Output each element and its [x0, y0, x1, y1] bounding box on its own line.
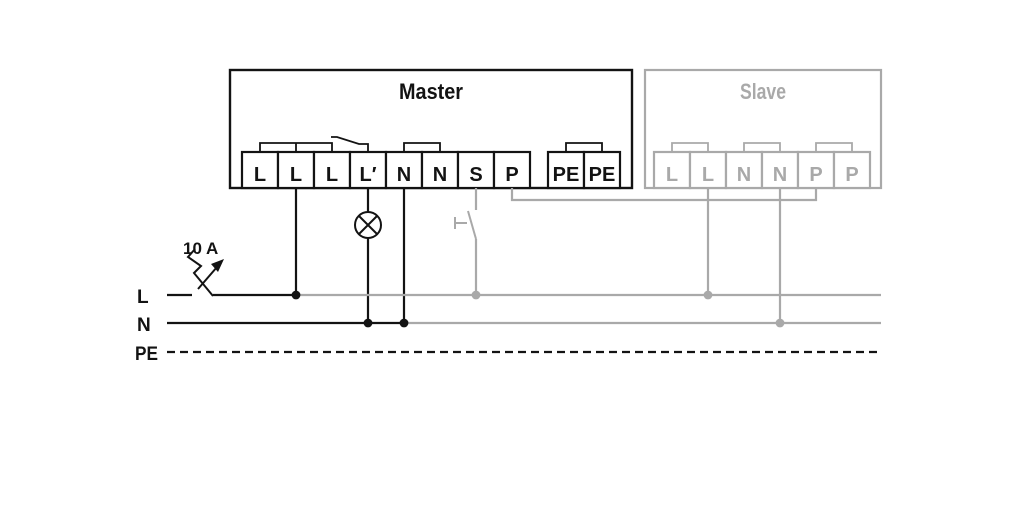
- master-l-bridge: [260, 143, 332, 152]
- push-button-icon: [455, 211, 476, 239]
- supply-bus: L N PE: [135, 287, 881, 365]
- relay-contact-icon: [331, 137, 368, 152]
- circuit-breaker: 10 A: [183, 239, 224, 296]
- junction-dot: [400, 319, 409, 328]
- lamp-icon: [355, 212, 381, 238]
- pe-bus-label: PE: [135, 344, 158, 365]
- terminal-label: L: [666, 164, 678, 186]
- wiring-diagram: Master L L L L′ N N S P PE PE: [0, 0, 1016, 531]
- terminal-label: L: [254, 164, 266, 186]
- slave-l-bridge: [672, 143, 708, 152]
- slave-p-bridge: [816, 143, 852, 152]
- terminal-label: L′: [359, 164, 376, 186]
- terminal-label: P: [505, 164, 518, 186]
- terminal-label: N: [397, 164, 411, 186]
- terminal-label: PE: [553, 164, 580, 186]
- terminal-label: N: [433, 164, 447, 186]
- terminal-label: N: [773, 164, 787, 186]
- master-wiring: [296, 188, 404, 323]
- slave-terminal-row: L L N N P P: [654, 152, 870, 188]
- n-bus-label: N: [137, 315, 151, 336]
- junction-dot: [776, 319, 785, 328]
- master-unit: Master L L L L′ N N S P PE PE: [230, 70, 632, 188]
- terminal-label: P: [809, 164, 822, 186]
- junction-dot: [704, 291, 713, 300]
- terminal-label: N: [737, 164, 751, 186]
- master-title: Master: [399, 79, 463, 104]
- junction-dot: [292, 291, 301, 300]
- terminal-label: S: [469, 164, 482, 186]
- slave-title: Slave: [740, 79, 786, 104]
- terminal-label: L: [702, 164, 714, 186]
- slave-n-bridge: [744, 143, 780, 152]
- junctions: [292, 291, 785, 328]
- master-slave-p-link-wire: [512, 188, 816, 200]
- slave-unit: Slave L L N N P P: [645, 70, 881, 188]
- master-n-bridge: [404, 143, 440, 152]
- master-terminal-row: L L L L′ N N S P PE PE: [242, 152, 620, 188]
- terminal-label: L: [326, 164, 338, 186]
- master-pe-bridge: [566, 143, 602, 152]
- aux-wiring: [455, 188, 816, 323]
- terminal-label: P: [845, 164, 858, 186]
- terminal-label: PE: [589, 164, 616, 186]
- terminal-label: L: [290, 164, 302, 186]
- junction-dot: [472, 291, 481, 300]
- l-bus-label: L: [137, 287, 149, 308]
- wiring-diagram-page: Master L L L L′ N N S P PE PE: [0, 0, 1016, 531]
- junction-dot: [364, 319, 373, 328]
